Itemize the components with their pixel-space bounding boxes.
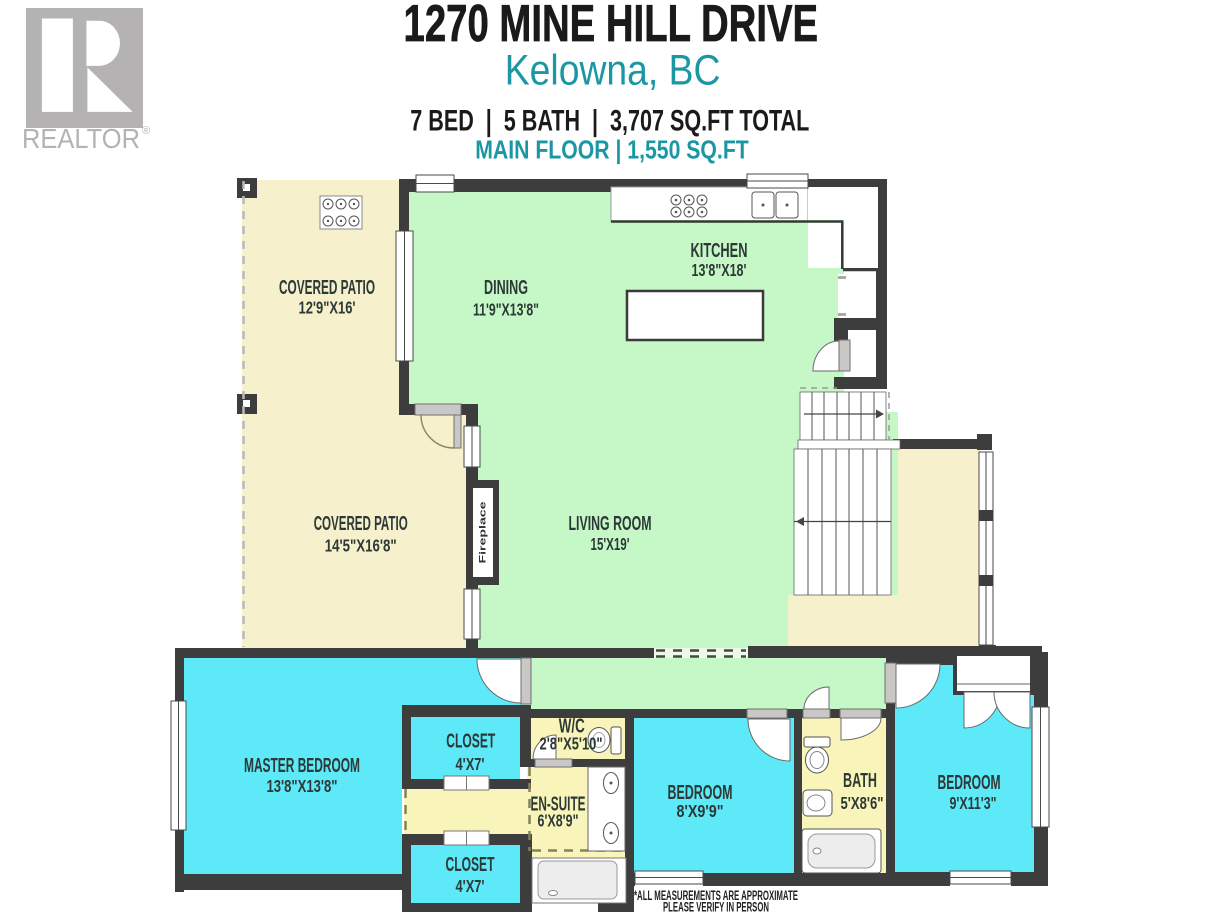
svg-text:4'X7': 4'X7' — [456, 876, 485, 896]
svg-text:13'8"X18': 13'8"X18' — [692, 260, 747, 280]
svg-text:COVERED PATIO: COVERED PATIO — [279, 277, 375, 299]
svg-text:6'X8'9": 6'X8'9" — [538, 811, 579, 831]
svg-text:MASTER BEDROOM: MASTER BEDROOM — [244, 755, 360, 777]
svg-text:13'8"X13'8": 13'8"X13'8" — [267, 776, 338, 796]
svg-text:BATH: BATH — [843, 770, 877, 792]
svg-text:Fireplace: Fireplace — [478, 502, 489, 564]
svg-text:MAIN FLOOR | 1,550 SQ.FT: MAIN FLOOR | 1,550 SQ.FT — [475, 135, 749, 165]
svg-text:9'X11'3": 9'X11'3" — [950, 793, 997, 813]
svg-text:8'X9'9": 8'X9'9" — [677, 801, 724, 821]
svg-text:11'9"X13'8": 11'9"X13'8" — [473, 300, 539, 320]
svg-text:LIVING ROOM: LIVING ROOM — [569, 513, 652, 535]
svg-text:7 BED | 5 BATH | 3,707 SQ.: 7 BED | 5 BATH | 3,707 SQ.FT TOTAL — [410, 105, 809, 138]
svg-text:DINING: DINING — [484, 277, 528, 299]
svg-text:12'9"X16': 12'9"X16' — [299, 298, 356, 318]
svg-text:BEDROOM: BEDROOM — [938, 772, 1001, 794]
svg-text:COVERED PATIO: COVERED PATIO — [314, 513, 408, 535]
svg-text:CLOSET: CLOSET — [446, 854, 495, 876]
svg-text:CLOSET: CLOSET — [446, 731, 495, 753]
svg-text:2'8"X5'10": 2'8"X5'10" — [540, 734, 603, 754]
svg-text:4'X7': 4'X7' — [456, 754, 485, 774]
svg-text:14'5"X16'8": 14'5"X16'8" — [325, 536, 397, 556]
svg-text:®: ® — [142, 125, 150, 137]
svg-text:Kelowna, BC: Kelowna, BC — [505, 47, 721, 95]
svg-text:5'X8'6": 5'X8'6" — [841, 793, 884, 813]
svg-text:REALTOR: REALTOR — [22, 123, 140, 154]
svg-text:PLEASE VERIFY IN PERSON: PLEASE VERIFY IN PERSON — [663, 900, 769, 912]
svg-text:15'X19': 15'X19' — [591, 534, 630, 554]
svg-text:KITCHEN: KITCHEN — [691, 240, 748, 262]
svg-text:1270 MINE HILL DRIVE: 1270 MINE HILL DRIVE — [404, 0, 819, 53]
